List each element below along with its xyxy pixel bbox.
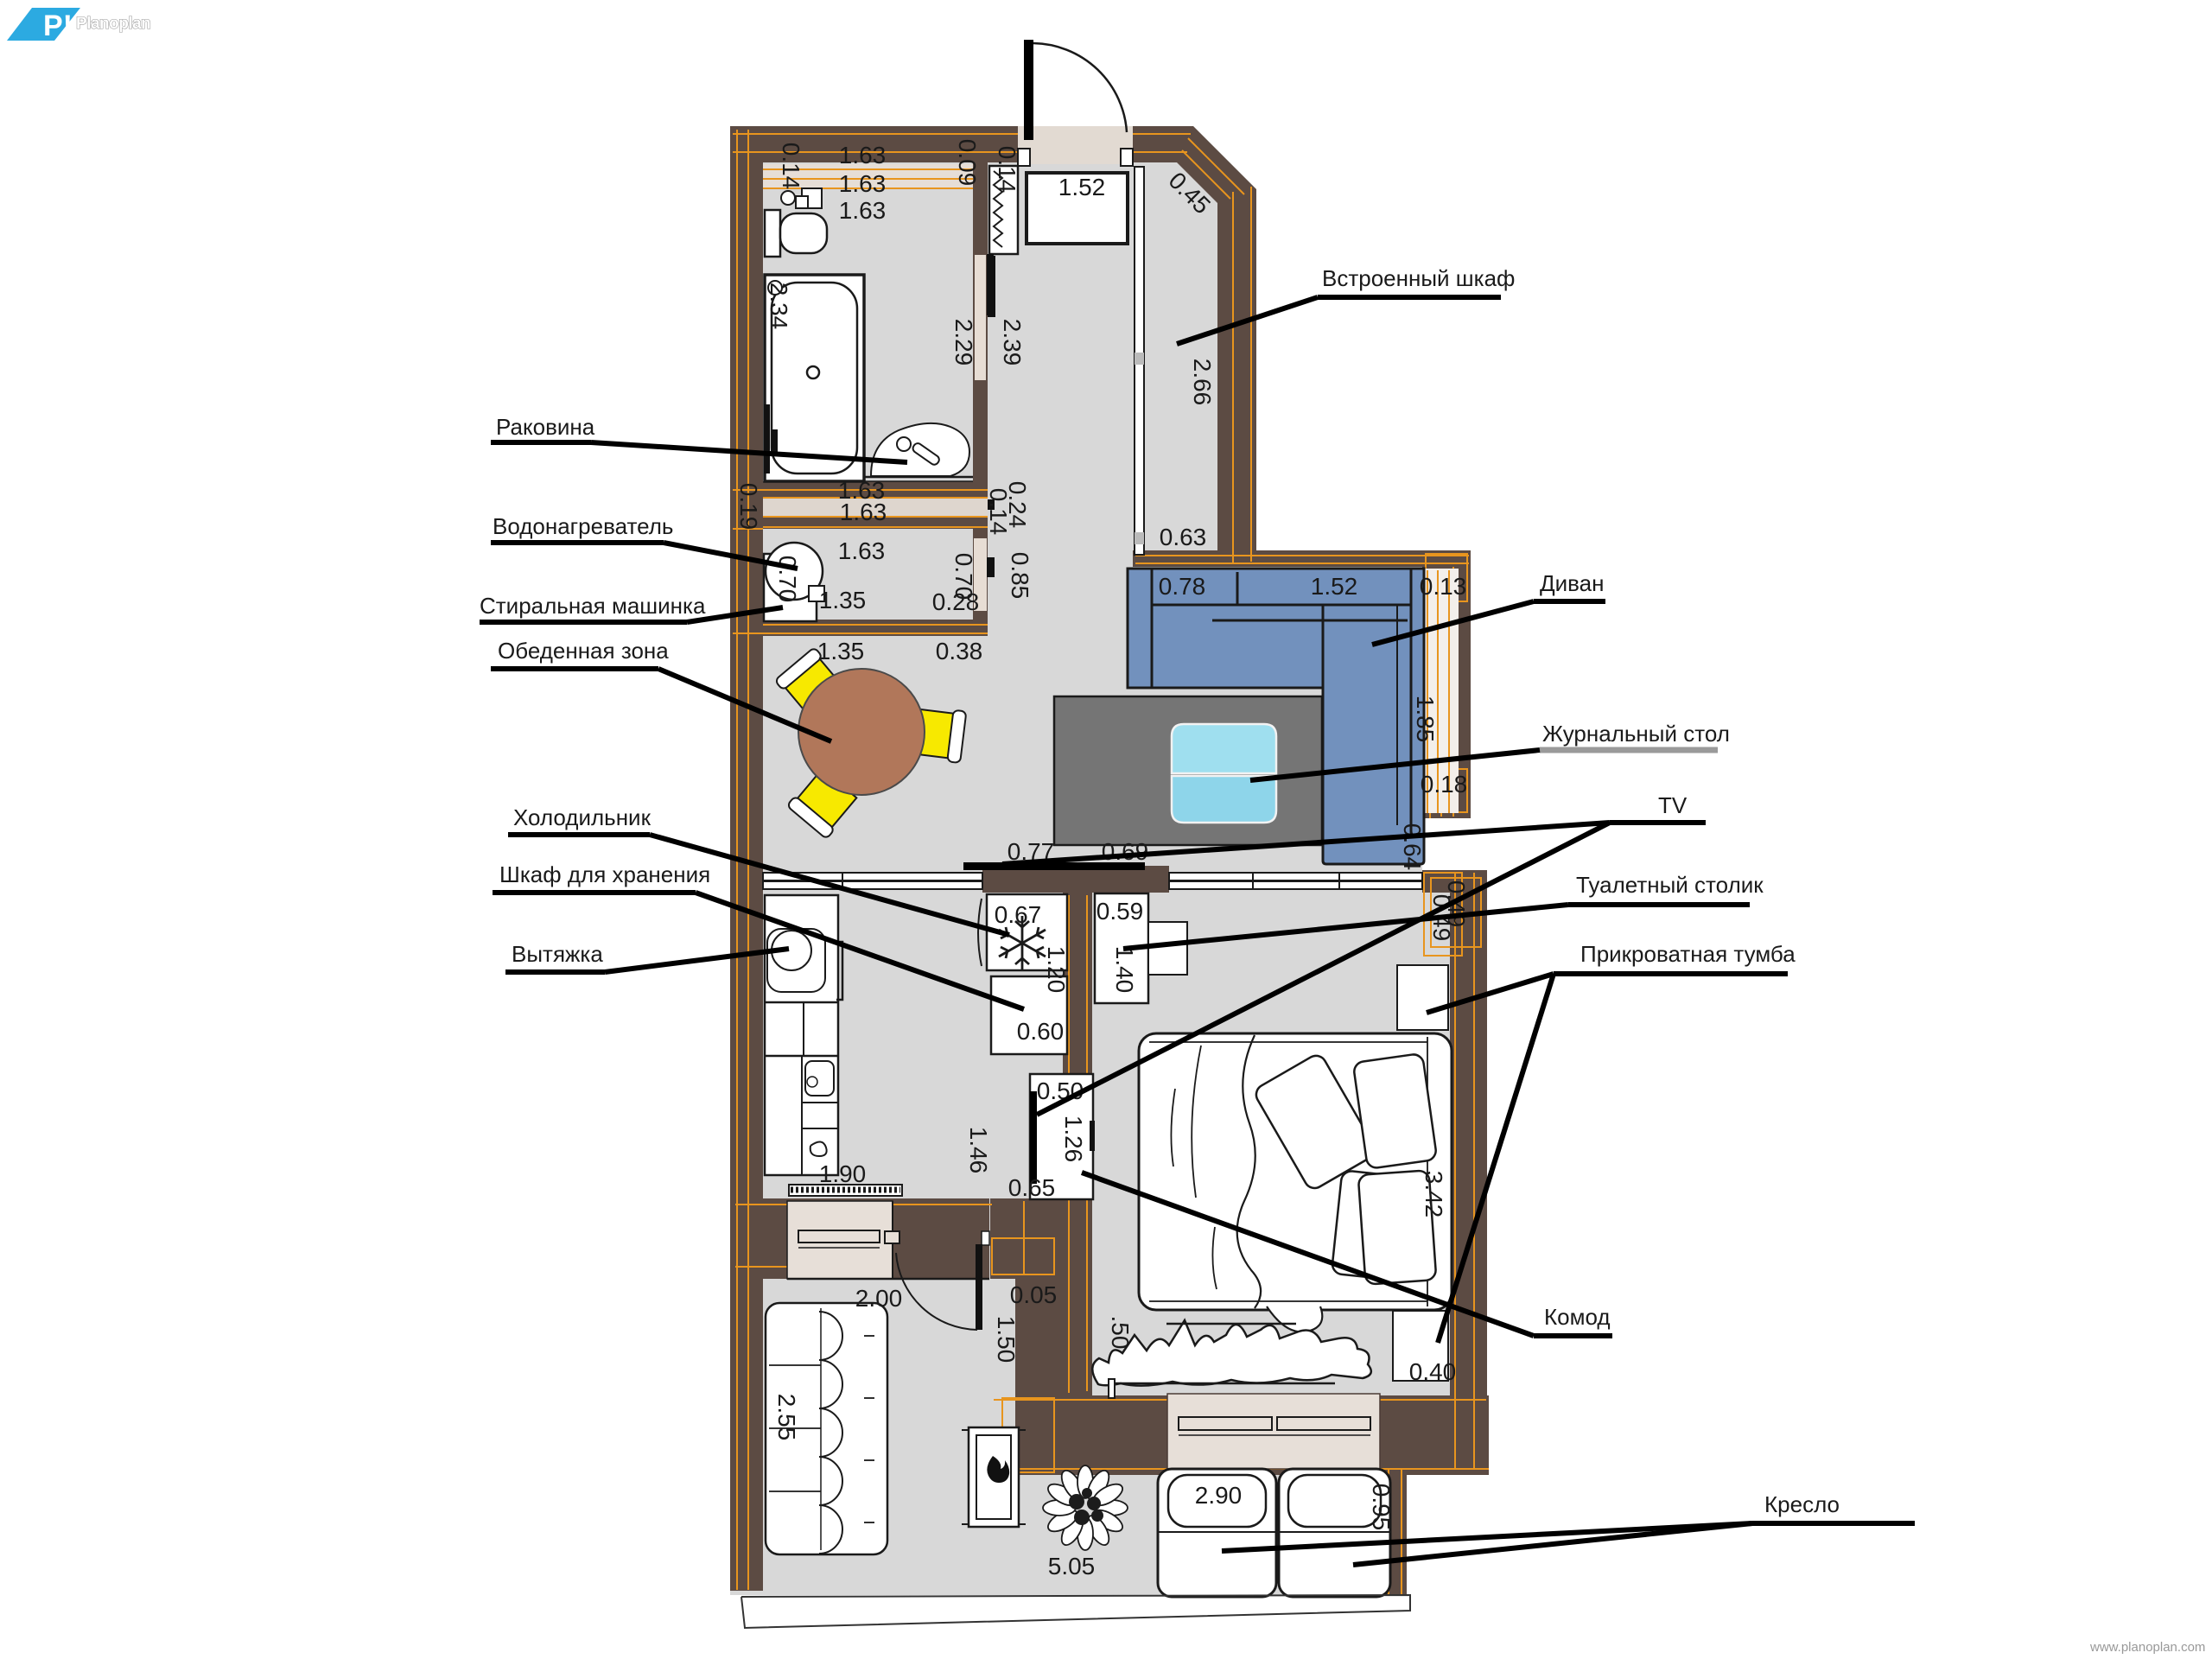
svg-text:0.67: 0.67	[995, 901, 1042, 928]
svg-text:1.26: 1.26	[1060, 1116, 1087, 1163]
svg-text:2.29: 2.29	[950, 319, 977, 366]
svg-text:1.63: 1.63	[838, 537, 886, 564]
svg-text:Комод: Комод	[1544, 1304, 1611, 1330]
svg-text:1.63: 1.63	[839, 197, 887, 224]
svg-text:1.50: 1.50	[993, 1316, 1020, 1363]
svg-text:Вытяжка: Вытяжка	[512, 941, 603, 967]
svg-text:0.14: 0.14	[985, 488, 1012, 536]
svg-text:Диван: Диван	[1540, 570, 1604, 596]
svg-text:2.00: 2.00	[855, 1285, 903, 1312]
svg-text:0.09: 0.09	[954, 139, 981, 187]
svg-text:Туалетный столик: Туалетный столик	[1576, 872, 1764, 898]
svg-text:2.90: 2.90	[1195, 1482, 1243, 1509]
svg-text:0.19: 0.19	[735, 483, 762, 531]
svg-text:TV: TV	[1658, 792, 1688, 818]
svg-text:0.64: 0.64	[1399, 823, 1426, 871]
svg-text:Журнальный стол: Журнальный стол	[1542, 721, 1730, 747]
svg-text:0.40: 0.40	[1409, 1358, 1457, 1385]
svg-text:0.38: 0.38	[936, 638, 983, 664]
svg-text:1.63: 1.63	[839, 170, 887, 197]
svg-text:0.78: 0.78	[1159, 573, 1206, 600]
svg-text:1.63: 1.63	[840, 499, 887, 525]
svg-text:1.20: 1.20	[1043, 946, 1070, 994]
svg-text:2.55: 2.55	[773, 1394, 800, 1441]
svg-text:1.46: 1.46	[965, 1127, 992, 1174]
svg-text:.50: .50	[1107, 1316, 1134, 1350]
svg-text:2.66: 2.66	[1189, 359, 1216, 406]
svg-text:1.90: 1.90	[819, 1160, 867, 1187]
svg-text:3.42: 3.42	[1421, 1171, 1447, 1218]
svg-text:1.35: 1.35	[819, 587, 867, 613]
svg-text:www.planoplan.com: www.planoplan.com	[2089, 1640, 2205, 1655]
svg-text:0.85: 0.85	[1007, 552, 1033, 600]
svg-text:0.69: 0.69	[1102, 838, 1149, 865]
svg-text:0.14: 0.14	[778, 143, 804, 190]
svg-text:1.52: 1.52	[1058, 174, 1106, 200]
svg-text:Холодильник: Холодильник	[513, 804, 652, 830]
svg-text:0.95: 0.95	[1368, 1484, 1395, 1531]
svg-text:0.28: 0.28	[932, 588, 980, 615]
svg-text:0.63: 0.63	[1160, 524, 1207, 550]
svg-text:2.39: 2.39	[999, 319, 1026, 366]
svg-text:1.35: 1.35	[817, 638, 865, 664]
svg-text:Стиральная машинка: Стиральная машинка	[480, 593, 706, 619]
svg-text:0.14: 0.14	[994, 146, 1020, 194]
svg-text:Прикроватная тумба: Прикроватная тумба	[1580, 941, 1796, 967]
svg-text:Водонагреватель: Водонагреватель	[493, 513, 673, 539]
svg-text:1.85: 1.85	[1412, 696, 1439, 743]
svg-text:Обеденная зона: Обеденная зона	[498, 638, 669, 664]
svg-text:5.05: 5.05	[1048, 1553, 1096, 1580]
svg-text:1.63: 1.63	[839, 142, 887, 168]
svg-text:Planoplan: Planoplan	[76, 15, 150, 33]
svg-text:1.52: 1.52	[1311, 573, 1358, 600]
svg-text:2.34: 2.34	[766, 283, 792, 330]
svg-text:Встроенный шкаф: Встроенный шкаф	[1322, 265, 1515, 291]
svg-text:0.65: 0.65	[1008, 1174, 1056, 1201]
svg-text:0.18: 0.18	[1421, 771, 1468, 798]
svg-text:1.40: 1.40	[1111, 946, 1138, 994]
svg-text:P!: P!	[43, 10, 73, 42]
svg-text:0.60: 0.60	[1017, 1018, 1065, 1045]
svg-text:Кресло: Кресло	[1764, 1491, 1840, 1517]
svg-text:Шкаф для хранения: Шкаф для хранения	[499, 861, 710, 887]
svg-text:0.59: 0.59	[1096, 898, 1144, 925]
svg-text:0.13: 0.13	[1420, 573, 1467, 600]
svg-text:0.05: 0.05	[1010, 1281, 1058, 1308]
svg-text:Раковина: Раковина	[496, 414, 595, 440]
